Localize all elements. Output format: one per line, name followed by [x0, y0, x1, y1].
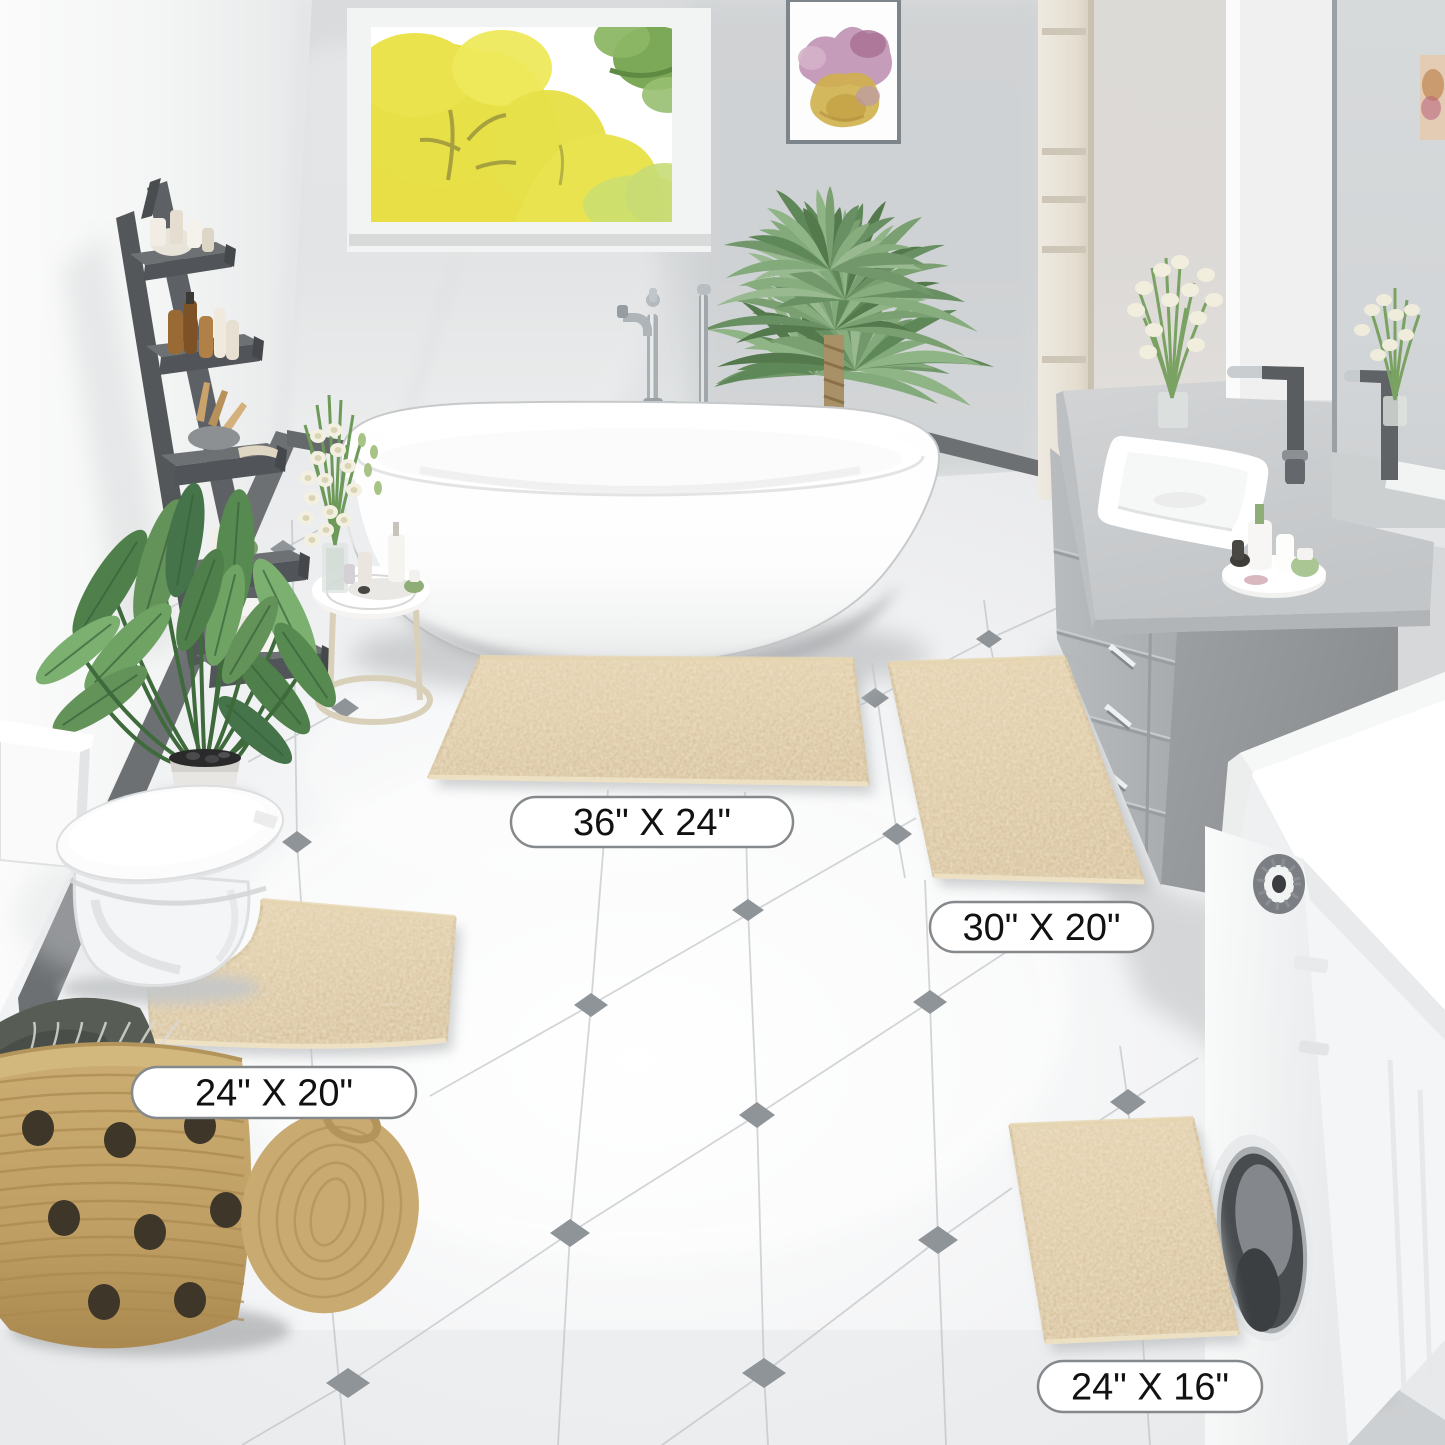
- svg-text:24" X 20": 24" X 20": [195, 1073, 353, 1115]
- svg-text:36" X 24": 36" X 24": [573, 802, 731, 844]
- svg-text:24" X 16": 24" X 16": [1071, 1367, 1229, 1409]
- svg-text:30" X 20": 30" X 20": [963, 907, 1121, 949]
